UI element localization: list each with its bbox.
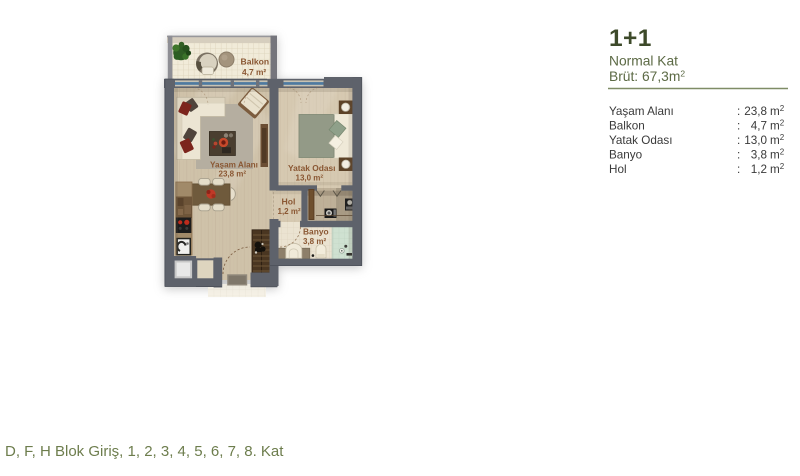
svg-text:Yatak Odası: Yatak Odası: [609, 134, 672, 147]
svg-text:1,2 m²: 1,2 m²: [278, 207, 301, 216]
svg-text:Yaşam Alanı: Yaşam Alanı: [609, 105, 674, 118]
svg-text::: :: [737, 163, 740, 176]
svg-text:3,8: 3,8: [751, 149, 767, 162]
svg-text:Normal Kat: Normal Kat: [609, 54, 678, 69]
svg-text:Yatak Odası: Yatak Odası: [288, 163, 336, 173]
svg-text:Banyo: Banyo: [303, 227, 329, 237]
svg-text::: :: [737, 105, 740, 118]
svg-text::: :: [737, 149, 740, 162]
svg-text:Banyo: Banyo: [609, 149, 643, 162]
svg-text:1,2: 1,2: [751, 163, 767, 176]
svg-text:4,7: 4,7: [751, 120, 767, 133]
svg-text:m2: m2: [770, 148, 785, 162]
svg-text:Yaşam Alanı: Yaşam Alanı: [210, 161, 258, 170]
svg-text:Hol: Hol: [282, 197, 296, 207]
svg-text:m2: m2: [770, 162, 785, 176]
svg-text:Hol: Hol: [609, 163, 627, 176]
svg-text:23,8 m²: 23,8 m²: [219, 170, 247, 179]
svg-text:Brüt: 67,3m2: Brüt: 67,3m2: [609, 69, 685, 85]
svg-text:13,0 m²: 13,0 m²: [296, 174, 324, 183]
svg-text::: :: [737, 134, 740, 147]
svg-text:1+1: 1+1: [609, 25, 652, 52]
svg-text:m2: m2: [770, 133, 785, 147]
svg-text:4,7 m²: 4,7 m²: [242, 67, 266, 77]
svg-text:23,8: 23,8: [744, 105, 767, 118]
svg-text:D, F, H Blok Giriş, 1, 2, 3, 4: D, F, H Blok Giriş, 1, 2, 3, 4, 5, 6, 7,…: [5, 443, 284, 460]
svg-text:13,0: 13,0: [744, 134, 767, 147]
svg-text:Balkon: Balkon: [241, 57, 270, 67]
svg-text:3,8 m²: 3,8 m²: [303, 237, 326, 246]
svg-text:Balkon: Balkon: [609, 120, 645, 133]
svg-text:m2: m2: [770, 119, 785, 133]
svg-text:m2: m2: [770, 104, 785, 118]
svg-text::: :: [737, 120, 740, 133]
